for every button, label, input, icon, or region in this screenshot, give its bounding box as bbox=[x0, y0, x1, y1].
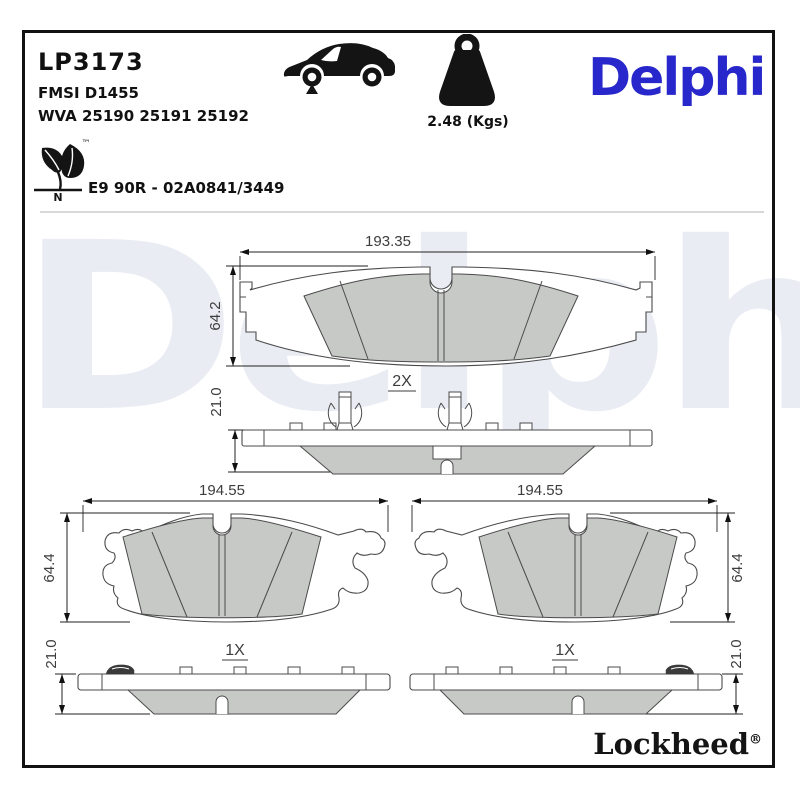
delphi-logo: Delphi bbox=[588, 48, 764, 108]
dim-thickness-value: 21.0 bbox=[208, 387, 225, 416]
datasheet-page: Delphi LP3173 FMSI D1455 WVA 25190 25191… bbox=[0, 0, 800, 800]
pad-side-view-mirrored bbox=[410, 665, 722, 714]
lockheed-brand: Lockheed bbox=[593, 727, 749, 761]
quantity-label: 1X bbox=[225, 642, 245, 659]
trademark-symbol: ™ bbox=[82, 139, 91, 149]
approval-number: E9 90R - 02A0841/3449 bbox=[88, 179, 284, 197]
pad-face-view bbox=[240, 267, 652, 366]
header-separator bbox=[40, 211, 764, 213]
center-slot bbox=[441, 460, 453, 474]
pad-side-view bbox=[78, 665, 390, 714]
leaf-icon: N ™ bbox=[32, 136, 94, 202]
pad-side-view bbox=[242, 392, 652, 474]
fmsi-reference: FMSI D1455 bbox=[38, 84, 139, 102]
part-number: LP3173 bbox=[38, 48, 144, 76]
backing-plate-side bbox=[242, 430, 652, 446]
friction-material-side bbox=[128, 690, 360, 714]
eco-n-label: N bbox=[53, 191, 62, 202]
dim-height-value: 64.2 bbox=[207, 301, 224, 330]
dim-thickness-value: 21.0 bbox=[728, 639, 745, 668]
bottom-left-pad-drawing: 194.55 64.4 1X 21.0 bbox=[30, 478, 415, 730]
registered-symbol: ® bbox=[749, 732, 762, 747]
dim-height-value: 64.4 bbox=[41, 553, 58, 582]
quantity-label: 2X bbox=[392, 373, 412, 390]
weight-icon bbox=[432, 34, 502, 112]
dim-width-value: 194.55 bbox=[517, 482, 563, 499]
pad-face-view-mirrored bbox=[415, 514, 697, 622]
dim-width-value: 194.55 bbox=[199, 482, 245, 499]
dim-height-value: 64.4 bbox=[729, 553, 746, 582]
dim-width-value: 193.35 bbox=[365, 233, 411, 250]
backing-plate-side bbox=[78, 674, 390, 690]
car-front-axle-icon bbox=[280, 36, 398, 98]
dim-thickness-value: 21.0 bbox=[43, 639, 60, 668]
dimension-width: 193.35 bbox=[240, 233, 655, 280]
wva-reference: WVA 25190 25191 25192 bbox=[38, 107, 249, 125]
center-lug bbox=[433, 446, 461, 459]
lockheed-logo: Lockheed® bbox=[540, 727, 762, 761]
spring-clip bbox=[438, 392, 471, 430]
wear-indicator-clip bbox=[106, 665, 134, 674]
friction-material bbox=[304, 274, 578, 362]
spring-clip bbox=[328, 392, 361, 430]
center-slot bbox=[216, 696, 228, 714]
pad-face-view bbox=[103, 514, 385, 622]
quantity-label: 1X bbox=[555, 642, 575, 659]
bottom-right-pad-drawing: 194.55 64.4 1X 21.0 bbox=[385, 478, 770, 730]
top-pad-drawing: 193.35 64.2 2X 21.0 bbox=[200, 226, 670, 488]
weight-value: 2.48 (Kgs) bbox=[418, 114, 518, 130]
